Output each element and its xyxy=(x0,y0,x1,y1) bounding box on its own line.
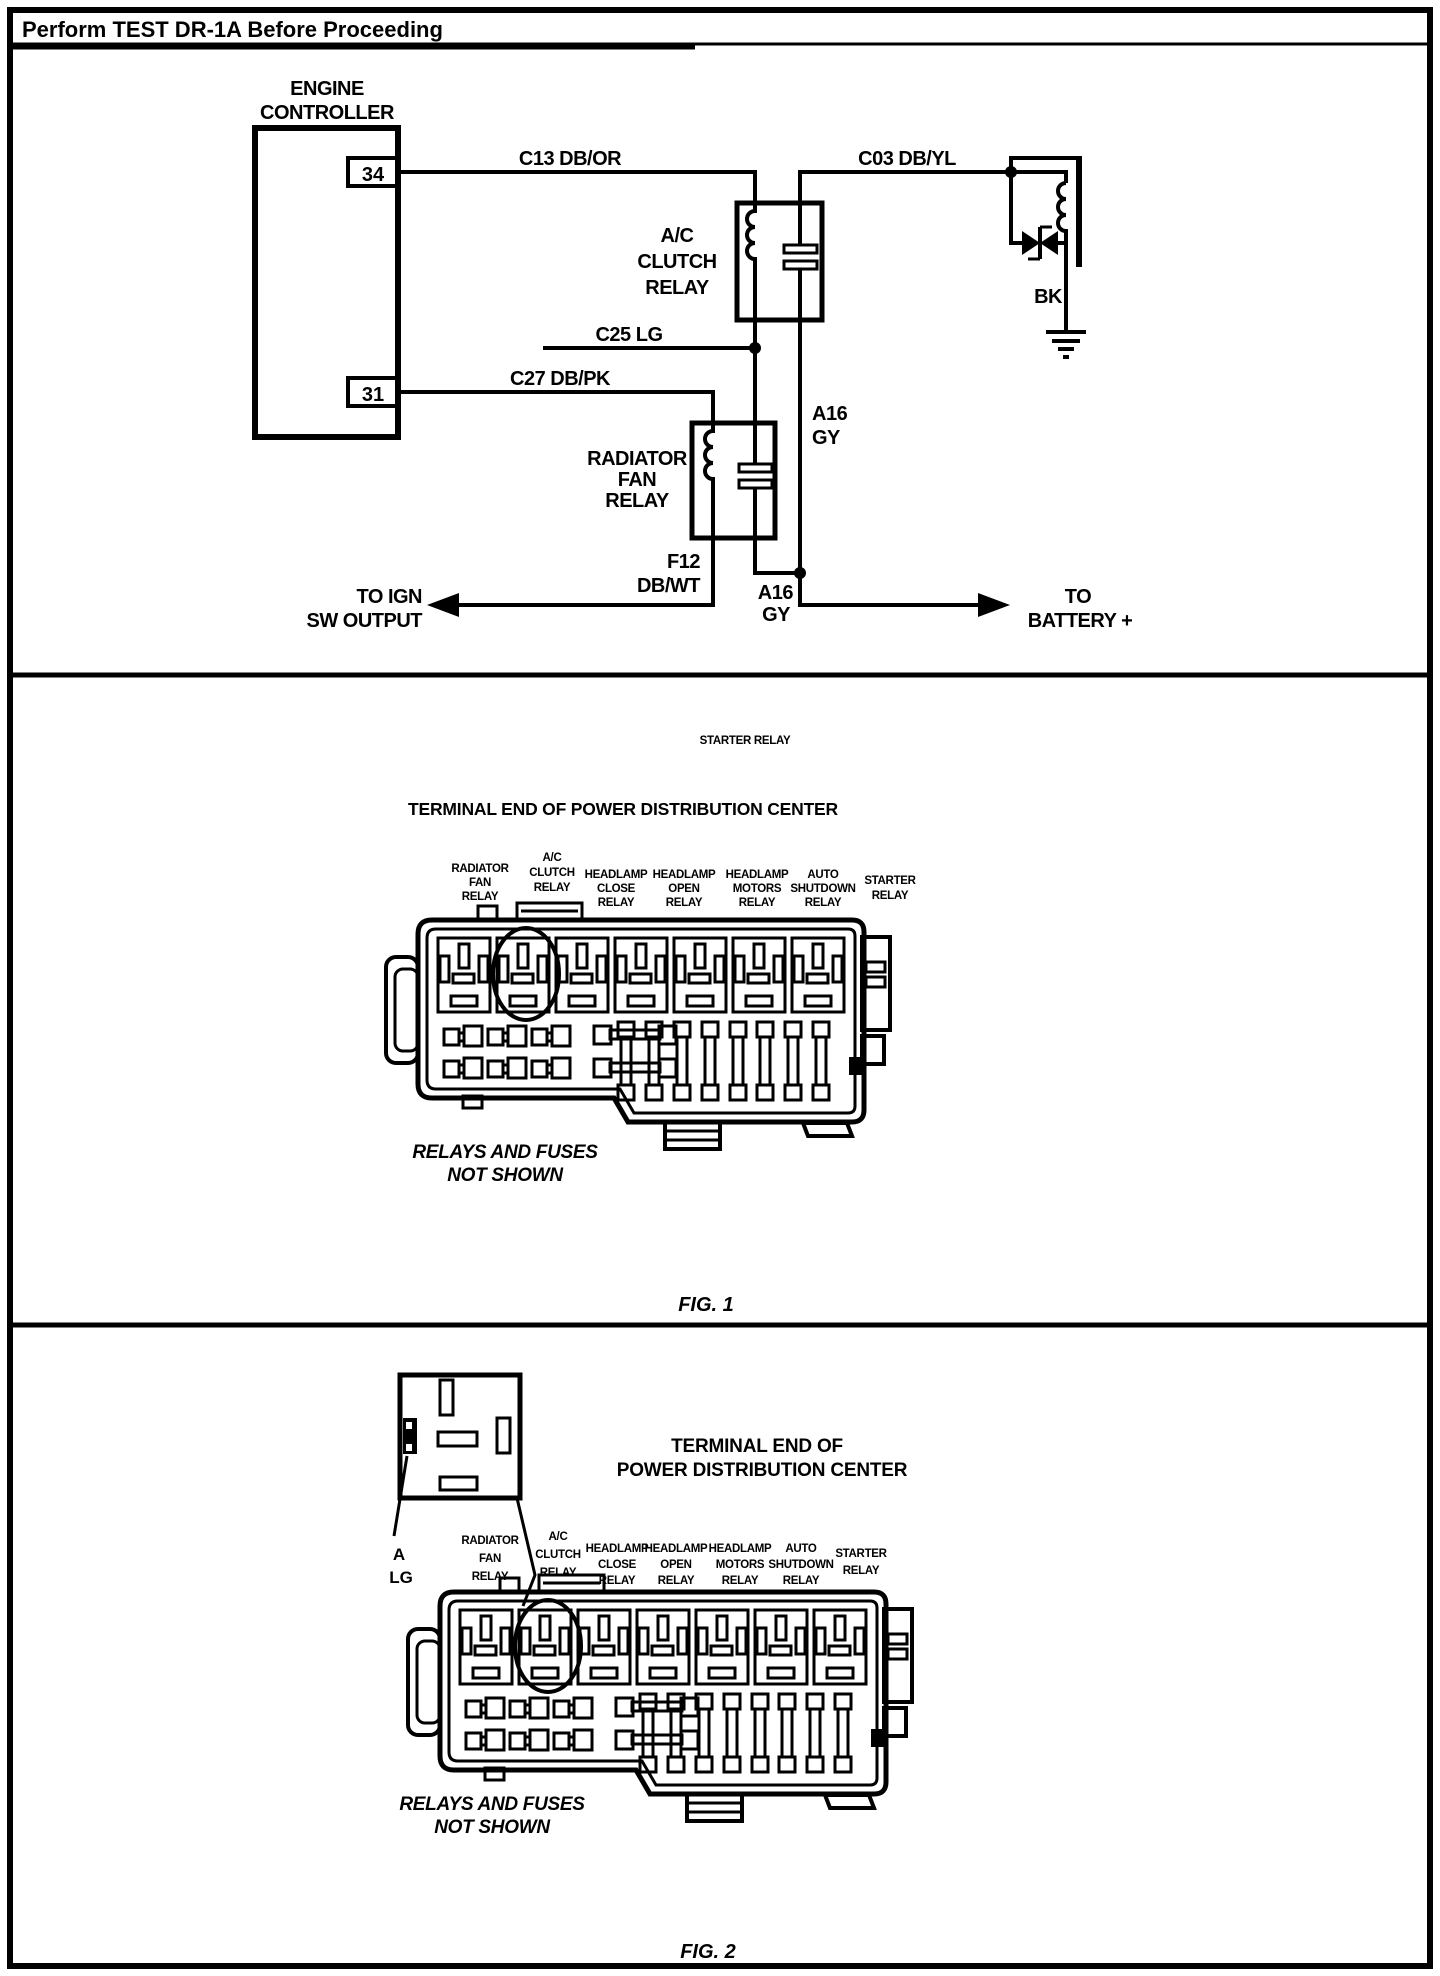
relay-label: SHUTDOWN xyxy=(768,1559,833,1571)
clutch-horn xyxy=(1084,172,1113,264)
relay-contact xyxy=(739,464,772,472)
relay-label: RELAY xyxy=(805,897,842,909)
relay-label: RELAY xyxy=(462,891,499,903)
fig1-title: TERMINAL END OF POWER DISTRIBUTION CENTE… xyxy=(408,799,839,819)
wire-label-c13: C13 DB/OR xyxy=(519,148,622,170)
relay-label: RELAY xyxy=(872,890,909,902)
relay-label: RADIATOR xyxy=(451,863,509,875)
to-battery-label: TO xyxy=(1065,586,1091,608)
fig1-not-shown-note: RELAYS AND FUSES xyxy=(412,1142,598,1163)
relay-label: CLOSE xyxy=(598,1559,637,1571)
relay-label: HEADLAMP xyxy=(645,1543,708,1555)
relay-label: SHUTDOWN xyxy=(790,883,855,895)
relay-label: RELAY xyxy=(783,1575,820,1587)
relay-label: AUTO xyxy=(807,869,839,881)
fig1-relay-labels: RADIATOR FAN RELAY A/C CLUTCH RELAY HEAD… xyxy=(451,852,916,909)
ac-clutch-relay-symbol xyxy=(737,203,822,320)
manual-page: Perform TEST DR-1A Before Proceeding ENG… xyxy=(0,0,1440,1976)
wire-c27 xyxy=(398,392,713,423)
engine-controller-label: CONTROLLER xyxy=(260,102,395,124)
arrow-to-ign xyxy=(427,593,459,617)
relay-label: CLUTCH xyxy=(535,1549,580,1561)
relay-contact xyxy=(784,261,817,269)
wire-c03 xyxy=(800,172,1066,203)
page-border xyxy=(10,10,1430,1966)
pin-34-label: 34 xyxy=(362,164,385,186)
junction-dot xyxy=(794,567,806,579)
relay-label: OPEN xyxy=(668,883,699,895)
wire-a16-jog xyxy=(755,538,800,573)
to-battery-label: BATTERY + xyxy=(1028,610,1133,632)
relay-label: FAN xyxy=(469,877,491,889)
wire-label-c25: C25 LG xyxy=(595,324,662,346)
relay-label: RELAY xyxy=(658,1575,695,1587)
relay-label: A/C xyxy=(543,852,562,864)
relay-coil xyxy=(747,203,755,320)
wire-a16 xyxy=(800,320,990,605)
terminal-cavity-detail xyxy=(394,1375,535,1606)
wire-label-c03: C03 DB/YL xyxy=(858,148,956,170)
relay-label: MOTORS xyxy=(716,1559,765,1571)
fig2-title: TERMINAL END OF xyxy=(671,1436,843,1457)
relay-label: RELAY xyxy=(666,897,703,909)
wire-label-f12: DB/WT xyxy=(637,575,700,597)
wire-label-a16-lower: GY xyxy=(762,604,791,626)
relay-label: STARTER xyxy=(864,875,916,887)
wire-label-bk: BK xyxy=(1034,286,1063,308)
relay-label: RADIATOR xyxy=(461,1535,519,1547)
page-title: Perform TEST DR-1A Before Proceeding xyxy=(22,17,443,42)
fig2-not-shown-note: RELAYS AND FUSES xyxy=(399,1794,585,1815)
fig1-caption: FIG. 1 xyxy=(678,1294,734,1316)
terminal-callout: A xyxy=(393,1545,405,1564)
ground-icon xyxy=(1046,332,1086,357)
relay-label: RELAY xyxy=(598,897,635,909)
fig2-not-shown-note: NOT SHOWN xyxy=(434,1817,551,1838)
relay-label: RELAY xyxy=(722,1575,759,1587)
fig2-caption: FIG. 2 xyxy=(680,1941,736,1963)
terminal-callout: LG xyxy=(389,1568,413,1587)
relay-label: RELAY xyxy=(534,882,571,894)
radiator-fan-relay-symbol xyxy=(692,423,775,538)
relay-label: RELAY xyxy=(739,897,776,909)
to-ign-label: TO IGN xyxy=(356,586,422,608)
circuit-wires xyxy=(398,166,1066,617)
relay-label: HEADLAMP xyxy=(653,869,716,881)
pin-31-label: 31 xyxy=(362,384,384,406)
engine-controller-label: ENGINE xyxy=(290,78,364,100)
wire-label-a16-upper: GY xyxy=(812,427,841,449)
fig2-title: POWER DISTRIBUTION CENTER xyxy=(617,1460,908,1481)
relay-label: AUTO xyxy=(785,1543,817,1555)
relay-coil xyxy=(705,423,713,538)
fig2-section: A LG TERMINAL END OF POWER DISTRIBUTION … xyxy=(389,1375,912,1963)
diode-triangle xyxy=(1022,231,1040,255)
relay-label: MOTORS xyxy=(733,883,782,895)
page-frame xyxy=(10,10,1430,1966)
fig2-pdc-drawing xyxy=(408,1575,912,1821)
fig1-pdc-drawing xyxy=(386,903,890,1149)
wire-c13 xyxy=(398,172,755,203)
ac-clutch-relay-label: CLUTCH xyxy=(637,251,716,273)
engine-controller: ENGINE CONTROLLER 34 31 xyxy=(255,78,398,437)
radiator-fan-relay-label: RELAY xyxy=(605,490,670,512)
relay-label: OPEN xyxy=(660,1559,691,1571)
wire-label-c27: C27 DB/PK xyxy=(510,368,611,390)
diode-triangle xyxy=(1040,231,1058,255)
wire-label-a16-upper: A16 xyxy=(812,403,848,425)
wiring-diagram-canvas: Perform TEST DR-1A Before Proceeding ENG… xyxy=(0,0,1440,1976)
relay-label: A/C xyxy=(549,1531,568,1543)
fig1-not-shown-note: NOT SHOWN xyxy=(447,1165,564,1186)
relay-label: CLOSE xyxy=(597,883,636,895)
arrow-to-battery xyxy=(978,593,1010,617)
schematic-section: ENGINE CONTROLLER 34 31 xyxy=(255,78,1132,632)
ac-clutch-relay-label: RELAY xyxy=(645,277,710,299)
relay-label: HEADLAMP xyxy=(586,1543,649,1555)
relay-label: FAN xyxy=(479,1553,501,1565)
radiator-fan-relay-label: RADIATOR xyxy=(587,448,688,470)
ac-compressor-clutch-symbol xyxy=(1011,156,1113,357)
relay-contact xyxy=(784,245,817,253)
clutch-coil xyxy=(1058,183,1066,243)
wire-label-f12: F12 xyxy=(667,551,700,573)
radiator-fan-relay-label: FAN xyxy=(618,469,657,491)
wire-label-a16-lower: A16 xyxy=(758,582,794,604)
relay-label: STARTER xyxy=(835,1548,887,1560)
relay-label: HEADLAMP xyxy=(726,869,789,881)
to-ign-label: SW OUTPUT xyxy=(307,610,423,632)
relay-label: RELAY xyxy=(540,1567,577,1579)
relay-contact xyxy=(739,480,772,488)
relay-label: HEADLAMP xyxy=(585,869,648,881)
fig1-floating-note: STARTER RELAY xyxy=(700,735,791,747)
fig1-section: STARTER RELAY TERMINAL END OF POWER DIST… xyxy=(386,735,917,1316)
relay-label: RELAY xyxy=(843,1565,880,1577)
relay-label: CLUTCH xyxy=(529,867,574,879)
ac-clutch-relay-label: A/C xyxy=(661,225,694,247)
relay-label: HEADLAMP xyxy=(709,1543,772,1555)
